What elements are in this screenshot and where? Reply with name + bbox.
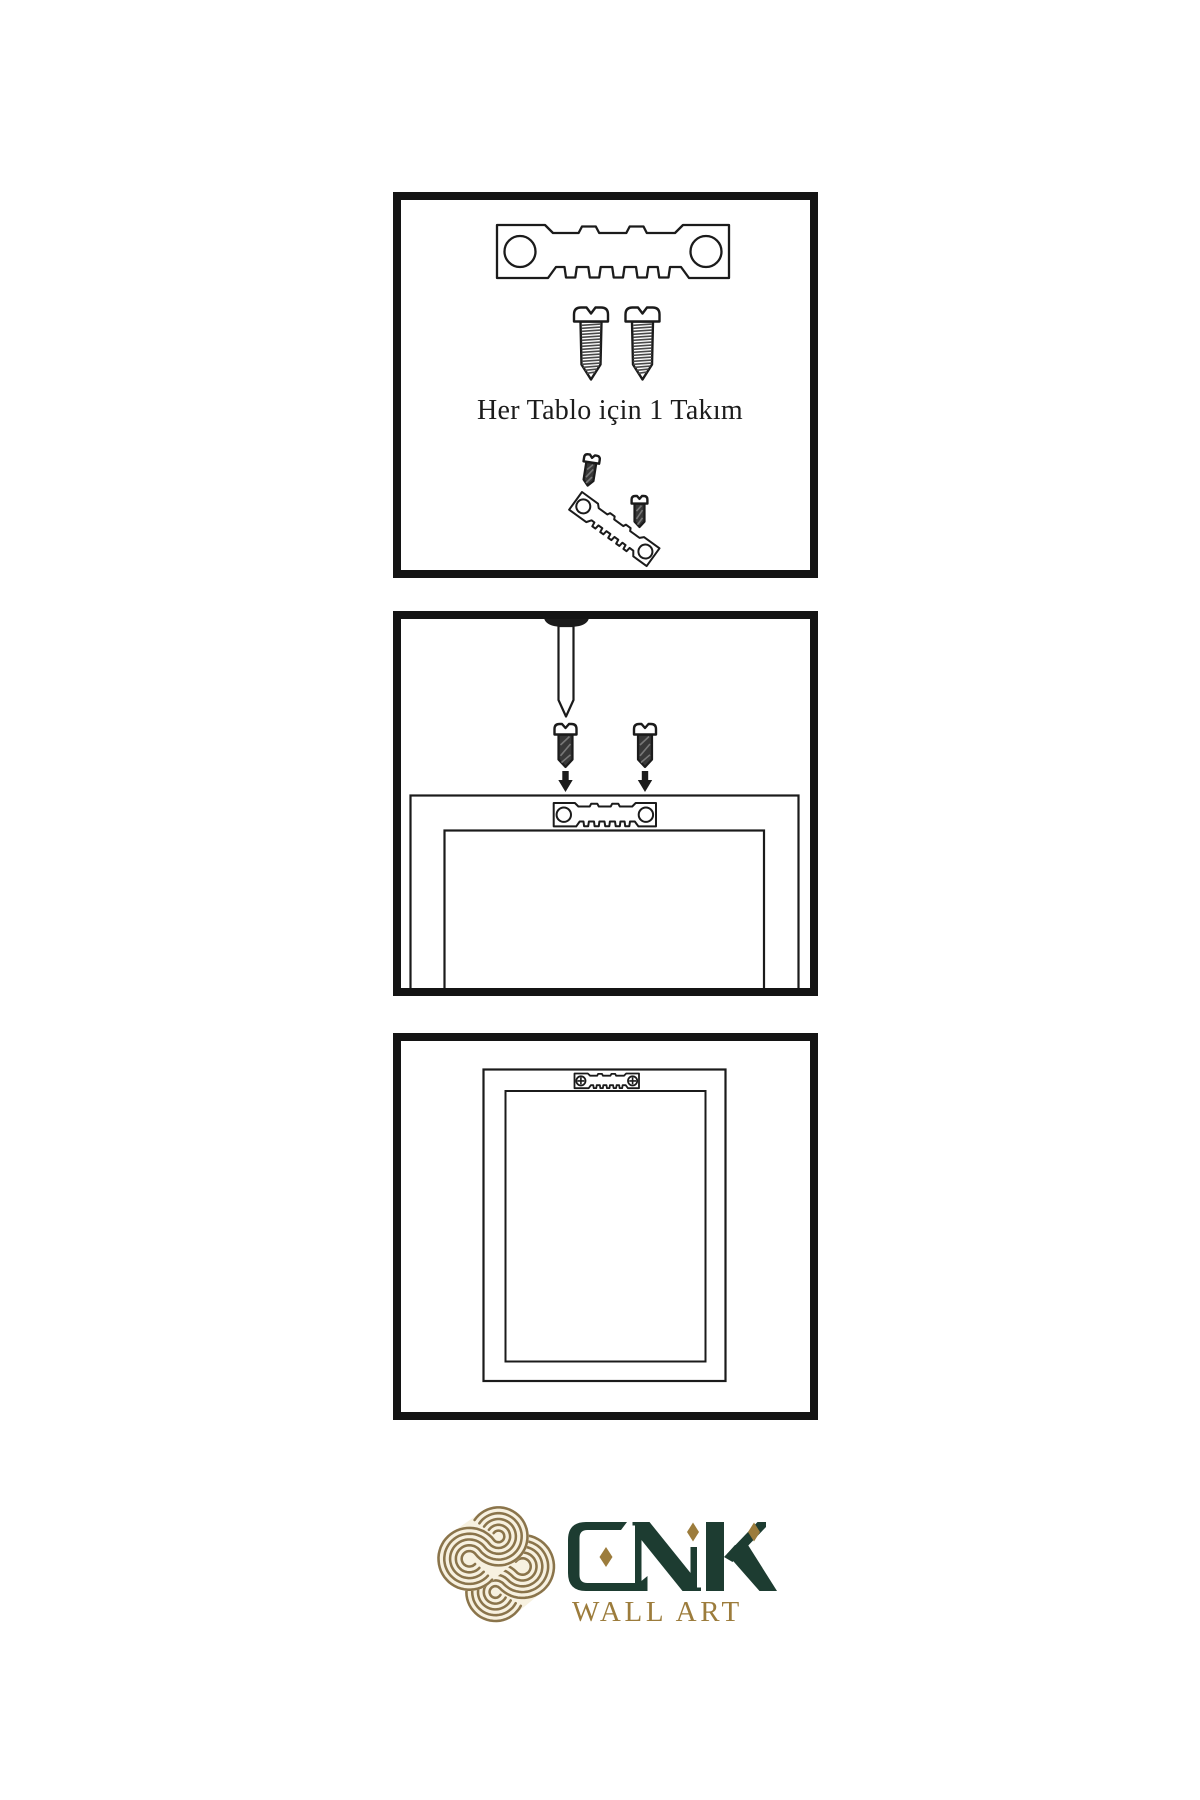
svg-text:Her Tablo için 1 Takım: Her Tablo için 1 Takım (477, 395, 743, 426)
svg-text:WALL ART: WALL ART (572, 1596, 743, 1628)
